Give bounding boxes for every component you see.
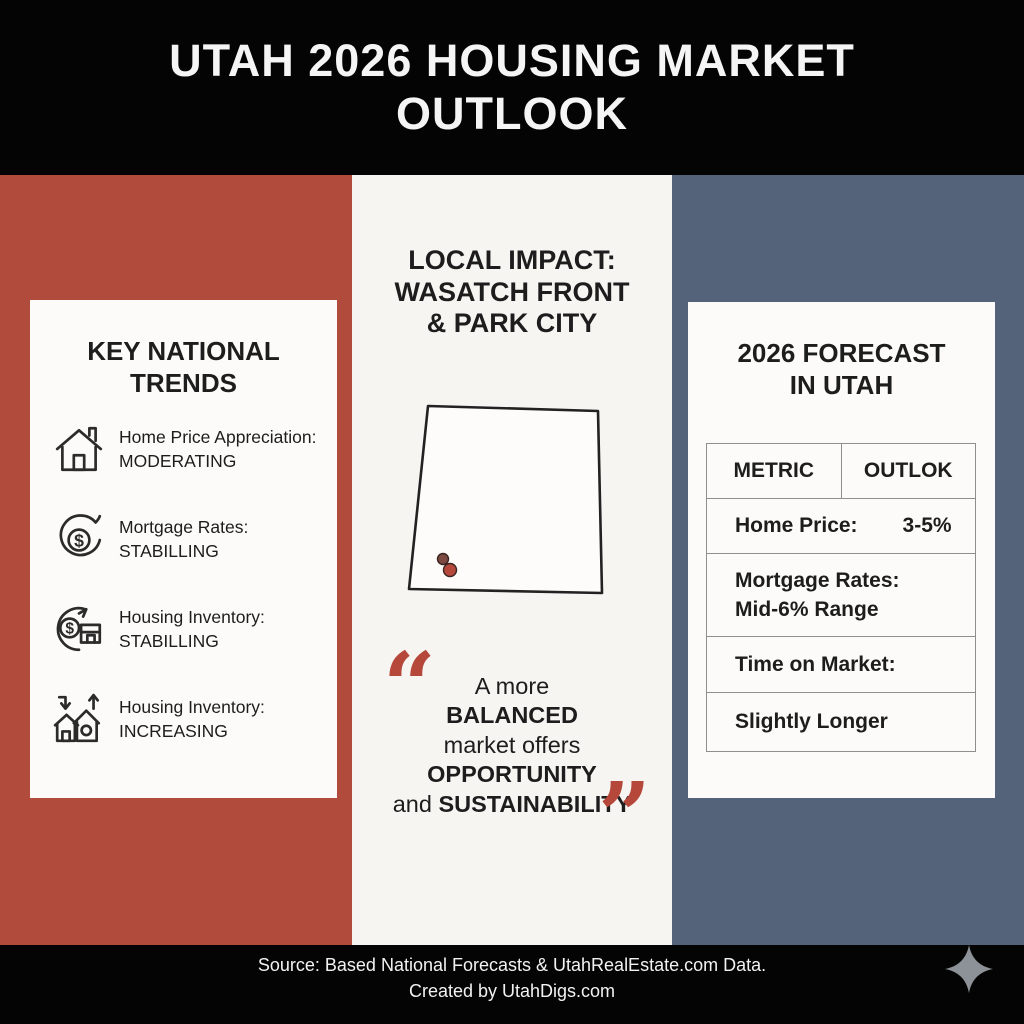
right-card-title-line1: 2026 FORECAST xyxy=(688,338,995,370)
footer-bar: Source: Based National Forecasts & UtahR… xyxy=(0,945,1024,1024)
key-national-trends-card: KEY NATIONAL TRENDS Home Price Appreciat… xyxy=(30,300,337,798)
metric-cell: Home Price: xyxy=(735,514,858,538)
house-icon xyxy=(52,422,106,476)
dollar-cycle-icon: $ xyxy=(52,512,106,566)
forecast-table: METRIC OUTLOK Home Price: 3-5% Mortgage … xyxy=(706,443,976,752)
trend-label: Housing Inventory: xyxy=(119,695,265,720)
table-row-home-price: Home Price: 3-5% xyxy=(707,499,975,554)
sparkle-icon xyxy=(942,942,996,996)
trend-item-home-price: Home Price Appreciation: MODERATING xyxy=(52,421,337,477)
trend-value: INCREASING xyxy=(119,719,265,744)
trend-list: Home Price Appreciation: MODERATING $ Mo… xyxy=(30,421,337,747)
trend-value: STABILLING xyxy=(119,629,265,654)
trend-label: Mortgage Rates: xyxy=(119,515,248,540)
outlook-cell: 3-5% xyxy=(903,514,952,538)
forecast-table-header: METRIC OUTLOK xyxy=(707,444,975,499)
quote-line: market offers xyxy=(362,731,662,760)
svg-text:$: $ xyxy=(74,531,84,551)
trend-value: STABILLING xyxy=(119,539,248,564)
quote-line-bold: BALANCED xyxy=(446,702,578,728)
infographic-poster: UTAH 2026 HOUSING MARKET OUTLOOK KEY NAT… xyxy=(0,0,1024,1024)
trend-label: Housing Inventory: xyxy=(119,605,265,630)
left-card-title: KEY NATIONAL TRENDS xyxy=(30,300,337,399)
local-impact-line3: & PARK CITY xyxy=(352,308,672,340)
right-card-title: 2026 FORECAST IN UTAH xyxy=(688,302,995,401)
local-impact-line2: WASATCH FRONT xyxy=(352,277,672,309)
outlook-cell: Mid-6% Range xyxy=(735,596,975,625)
page-title-line2: OUTLOOK xyxy=(169,88,855,141)
metric-cell: Time on Market: xyxy=(735,653,896,677)
dollar-building-cycle-icon: $ xyxy=(52,602,106,656)
page-title: UTAH 2026 HOUSING MARKET OUTLOOK xyxy=(169,35,855,140)
left-card-title-line2: TRENDS xyxy=(30,368,337,400)
quote-line: A more xyxy=(362,672,662,701)
local-impact-line1: LOCAL IMPACT: xyxy=(352,245,672,277)
trend-item-inventory-increasing: Housing Inventory: INCREASING xyxy=(52,691,337,747)
footer-credit-line: Created by UtahDigs.com xyxy=(0,978,1024,1004)
right-card-title-line2: IN UTAH xyxy=(688,370,995,402)
svg-text:$: $ xyxy=(65,621,74,638)
header-bar: UTAH 2026 HOUSING MARKET OUTLOOK xyxy=(0,0,1024,175)
header-cell-metric: METRIC xyxy=(707,444,842,498)
map-marker-park-city xyxy=(444,564,457,577)
trend-value: MODERATING xyxy=(119,449,316,474)
map-marker-wasatch-front xyxy=(438,554,449,565)
utah-state-outline xyxy=(409,406,602,593)
trend-item-inventory-stabilizing: $ Housing Inventory: STABILLING xyxy=(52,601,337,657)
quote-line-bold: OPPORTUNITY xyxy=(427,761,597,787)
table-row-time-on-market: Time on Market: xyxy=(707,637,975,693)
forecast-card: 2026 FORECAST IN UTAH METRIC OUTLOK Home… xyxy=(688,302,995,798)
metric-cell: Slightly Longer xyxy=(735,710,888,734)
table-row-mortgage-rates: Mortgage Rates: Mid-6% Range xyxy=(707,554,975,637)
local-impact-heading: LOCAL IMPACT: WASATCH FRONT & PARK CITY xyxy=(352,245,672,340)
metric-cell: Mortgage Rates: xyxy=(735,567,975,596)
trend-label: Home Price Appreciation: xyxy=(119,425,316,450)
page-title-line1: UTAH 2026 HOUSING MARKET xyxy=(169,35,855,88)
footer-source-line: Source: Based National Forecasts & UtahR… xyxy=(0,952,1024,978)
header-cell-outlook: OUTLOK xyxy=(842,444,976,498)
table-row-slightly-longer: Slightly Longer xyxy=(707,693,975,751)
close-quote-mark: ” xyxy=(598,770,651,862)
left-card-title-line1: KEY NATIONAL xyxy=(30,336,337,368)
houses-up-down-arrows-icon xyxy=(52,692,106,746)
trend-item-mortgage-rates: $ Mortgage Rates: STABILLING xyxy=(52,511,337,567)
utah-map xyxy=(400,393,612,611)
